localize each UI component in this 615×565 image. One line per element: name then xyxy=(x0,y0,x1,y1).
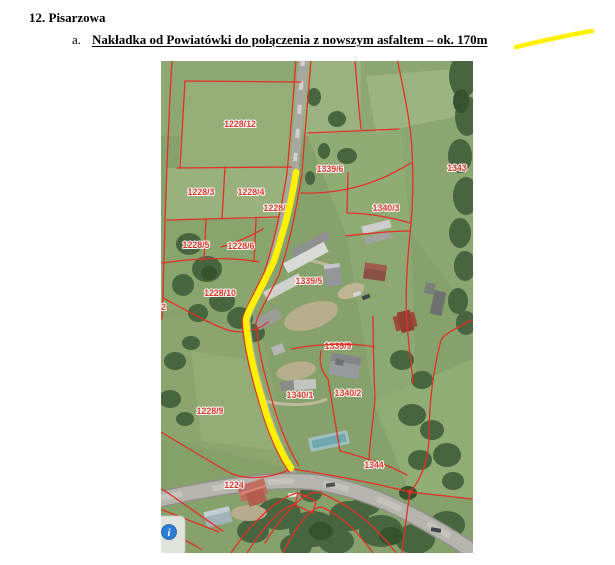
parcel-label: 1228/12 xyxy=(224,119,256,129)
parcel-label: 1339/6 xyxy=(317,164,344,174)
yellow-marker-line xyxy=(505,20,610,62)
parcel-label: 1344 xyxy=(364,460,384,470)
building xyxy=(324,263,343,287)
parcel-label: 1228/10 xyxy=(204,288,236,298)
parcel-label: 1224 xyxy=(224,480,244,490)
parcel-label: 1228/3 xyxy=(188,187,215,197)
marker-stroke xyxy=(516,31,592,47)
parcel-label: 1340/1 xyxy=(287,390,314,400)
document-page: 12. Pisarzowa a. Nakładka od Powiatówki … xyxy=(0,0,615,565)
parcel-label: 1339/9 xyxy=(325,341,352,351)
parcel-label: 1340/3 xyxy=(373,203,400,213)
list-marker: a. xyxy=(72,32,81,48)
parcel-label: 1340/2 xyxy=(335,388,362,398)
parcel-label-partial: 2 xyxy=(161,302,166,312)
building xyxy=(363,263,387,282)
parcel-label: 1228/4 xyxy=(238,187,265,197)
list-item-text: Nakładka od Powiatówki do połączenia z n… xyxy=(92,32,487,48)
aerial-map: 1228/12 1339/6 1343 1228/3 1228/4 1228/8… xyxy=(161,61,473,553)
section-heading: 12. Pisarzowa xyxy=(29,10,106,26)
parcel-label: 1343 xyxy=(447,163,467,173)
map-image: 1228/12 1339/6 1343 1228/3 1228/4 1228/8… xyxy=(161,61,473,553)
parcel-label: 1228/9 xyxy=(197,406,224,416)
parcel-label: 1228/6 xyxy=(228,241,255,251)
info-panel: i xyxy=(161,516,185,553)
building xyxy=(328,353,361,379)
parcel-label: 1339/5 xyxy=(296,276,323,286)
parcel-label: 1228/5 xyxy=(183,240,210,250)
info-button[interactable]: i xyxy=(162,525,177,540)
